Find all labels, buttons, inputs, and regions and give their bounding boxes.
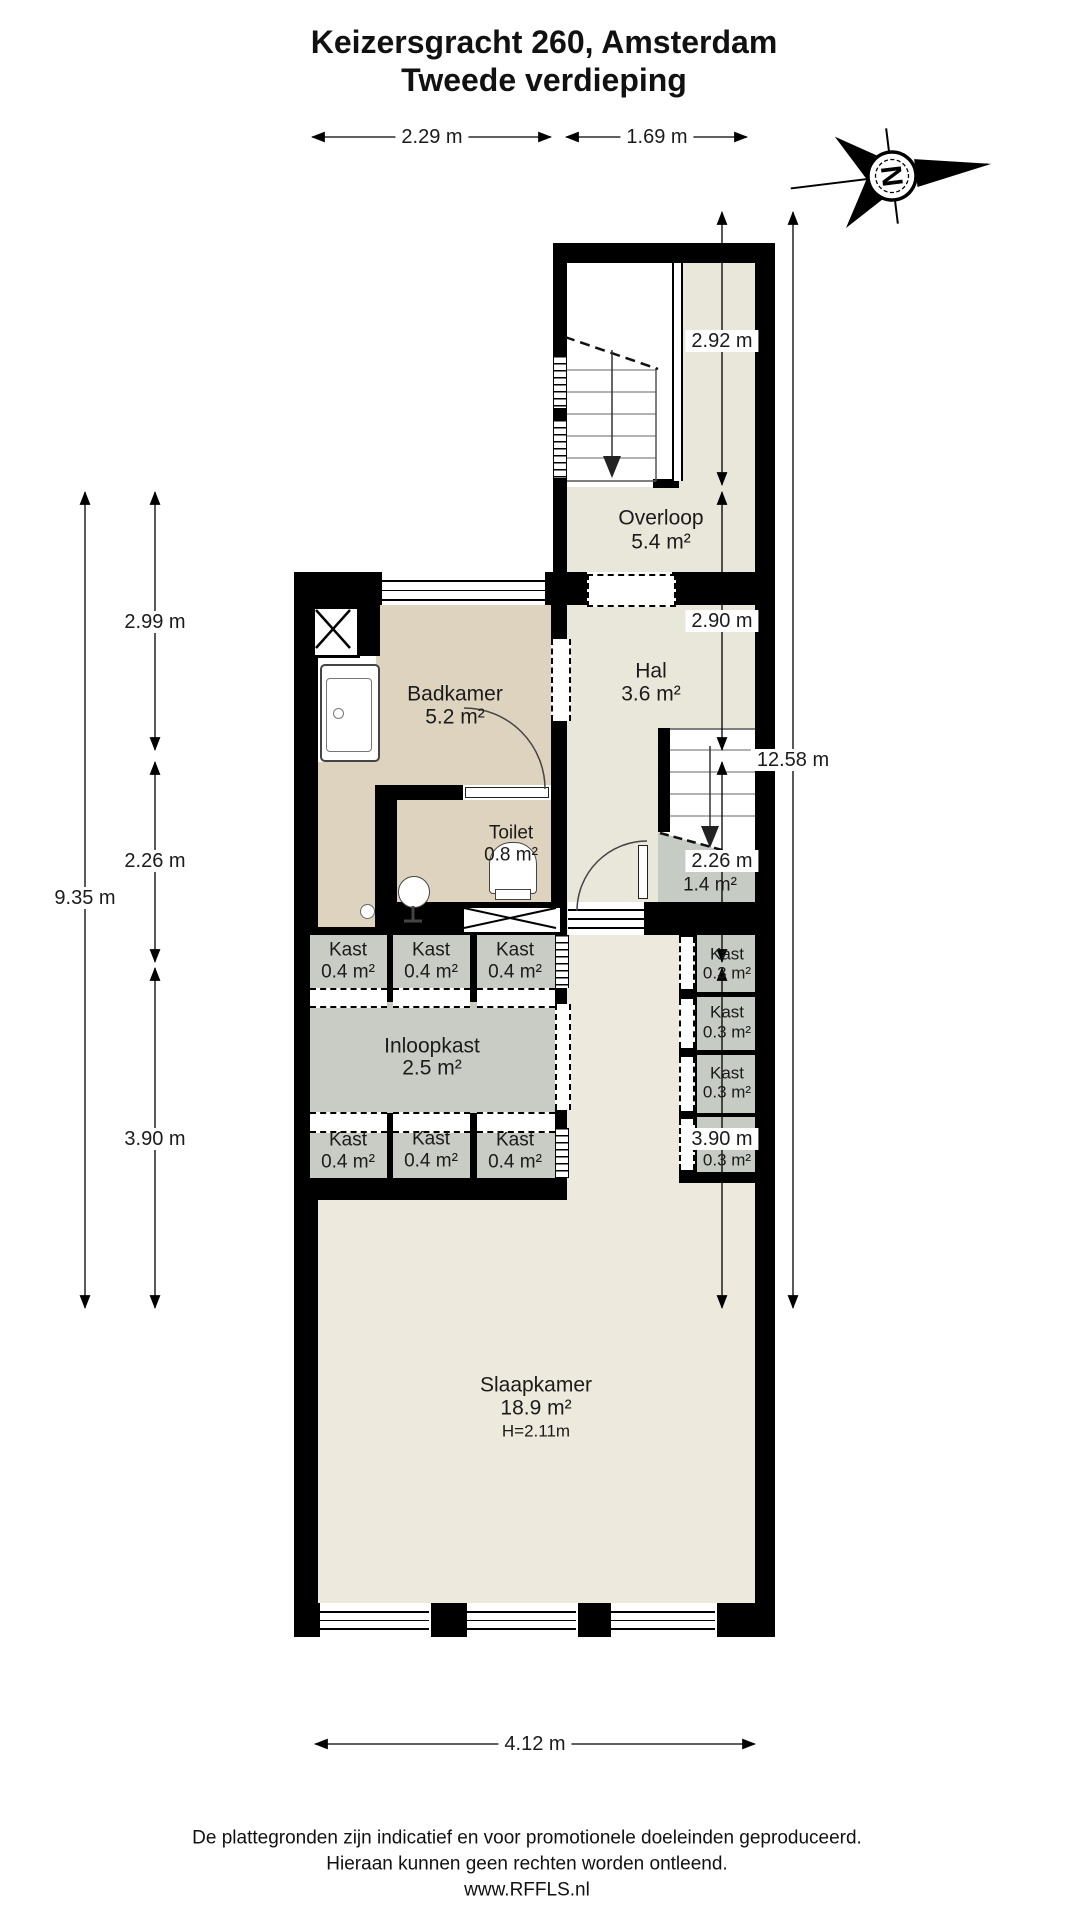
room-kast-04-area: 0.4 m² — [488, 963, 542, 982]
room-kast-03-area: 0.3 m² — [703, 965, 751, 982]
room-badkamer-area: 5.2 m² — [425, 707, 485, 728]
room-badkamer-name: Badkamer — [407, 684, 503, 705]
room-inloopkast-area: 2.5 m² — [402, 1058, 462, 1079]
dim-right-upper: 2.90 m — [685, 610, 758, 632]
website-url: www.RFFLS.nl — [464, 1881, 590, 1900]
room-kast-04-area: 0.4 m² — [404, 963, 458, 982]
floorplan-page: N Keizersgracht 260, Amsterdam Tweede ve… — [0, 0, 1080, 1920]
room-slaapkamer-height: H=2.11m — [502, 1423, 570, 1440]
room-toilet-area: 0.8 m² — [484, 846, 538, 865]
room-kast-04-name: Kast — [496, 941, 534, 960]
room-kast-04-area: 0.4 m² — [488, 1153, 542, 1172]
room-kast-04-name: Kast — [496, 1131, 534, 1150]
room-kast-03-name: Kast — [710, 1004, 744, 1021]
room-kast-04-name: Kast — [412, 941, 450, 960]
door-arcs — [464, 708, 647, 911]
page-title: Keizersgracht 260, Amsterdam — [311, 26, 778, 58]
dim-left-total: 9.35 m — [48, 887, 121, 909]
room-inloopkast-name: Inloopkast — [384, 1036, 480, 1057]
room-kast-03-area: 0.3 m² — [703, 1152, 751, 1169]
washbasin-pedestal — [404, 906, 422, 921]
room-kast-04-name: Kast — [412, 1130, 450, 1149]
room-hal-name: Hal — [635, 661, 667, 682]
plan-annotations: N — [0, 0, 1080, 1920]
room-kast-04-name: Kast — [329, 1131, 367, 1150]
room-kast-hal-area: 1.4 m² — [683, 876, 737, 895]
disclaimer-line2: Hieraan kunnen geen rechten worden ontle… — [326, 1855, 727, 1874]
room-slaapkamer-name: Slaapkamer — [480, 1375, 592, 1396]
hatch-x-icon — [464, 908, 556, 928]
dim-left-lower: 3.90 m — [118, 1128, 191, 1150]
room-hal-area: 3.6 m² — [621, 684, 681, 705]
staircase-hal — [660, 729, 755, 859]
compass-icon: N — [785, 116, 997, 236]
dim-bottom: 4.12 m — [498, 1733, 571, 1755]
stair-down-arrow-icon — [603, 456, 621, 478]
room-kast-04-name: Kast — [329, 941, 367, 960]
page-subtitle: Tweede verdieping — [401, 64, 687, 96]
room-kast-03-name: Kast — [710, 946, 744, 963]
dim-right-top: 2.92 m — [685, 330, 758, 352]
dim-left-middle: 2.26 m — [118, 850, 191, 872]
dim-left-upper: 2.99 m — [118, 611, 191, 633]
disclaimer-line1: De plattegronden zijn indicatief en voor… — [192, 1829, 862, 1848]
room-kast-03-name: Kast — [710, 1065, 744, 1082]
room-overloop-name: Overloop — [618, 508, 703, 529]
room-kast-04-area: 0.4 m² — [321, 1153, 375, 1172]
hal-door-arc — [577, 841, 647, 911]
room-kast-03-area: 0.3 m² — [703, 1024, 751, 1041]
room-slaapkamer-area: 18.9 m² — [500, 1398, 571, 1419]
dim-top-right: 1.69 m — [620, 126, 693, 148]
room-kast-03-area: 0.3 m² — [703, 1084, 751, 1101]
dim-right-lower: 3.90 m — [685, 1128, 758, 1150]
compass-north-letter: N — [874, 164, 908, 189]
room-kast-04-area: 0.4 m² — [321, 963, 375, 982]
staircase-top — [565, 337, 658, 481]
room-toilet-name: Toilet — [489, 824, 533, 843]
dim-top-left: 2.29 m — [395, 126, 468, 148]
shaft-x-icon — [316, 610, 350, 648]
dim-right-middle: 2.26 m — [685, 850, 758, 872]
room-kast-04-area: 0.4 m² — [404, 1152, 458, 1171]
dim-right-total: 12.58 m — [751, 749, 835, 771]
room-overloop-area: 5.4 m² — [631, 532, 691, 553]
